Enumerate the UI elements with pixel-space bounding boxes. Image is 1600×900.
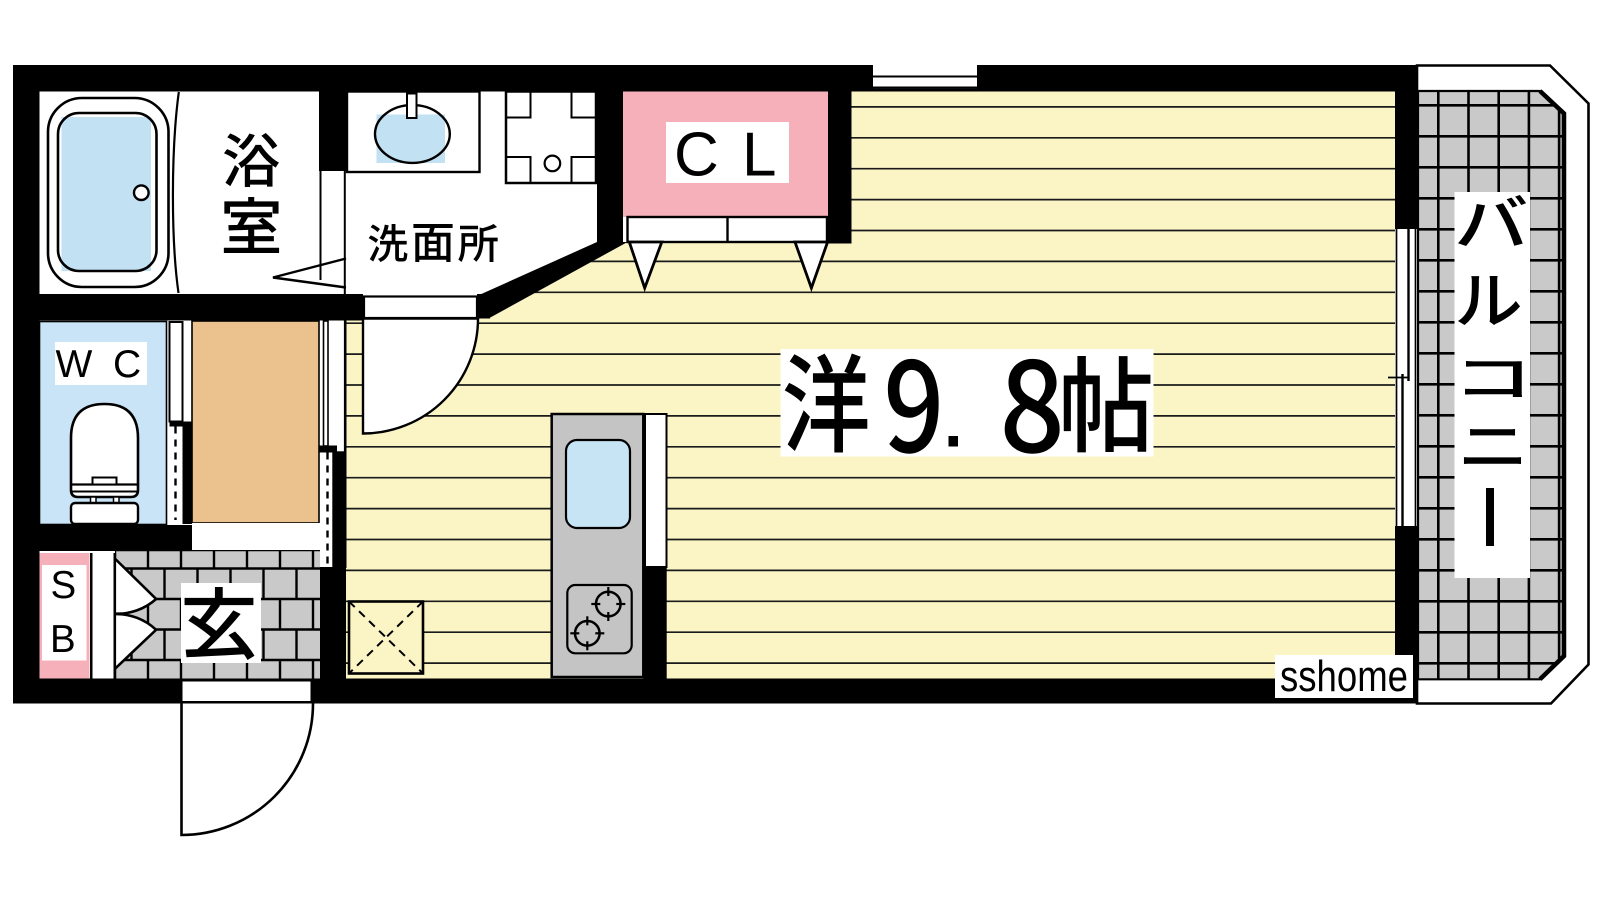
svg-text:L: L — [742, 121, 776, 190]
svg-text:C: C — [674, 121, 719, 190]
svg-text:S: S — [51, 564, 77, 607]
svg-text:B: B — [50, 618, 76, 661]
svg-text:C: C — [113, 343, 141, 386]
svg-text:W: W — [56, 343, 93, 386]
svg-text:sshome: sshome — [1280, 652, 1408, 701]
